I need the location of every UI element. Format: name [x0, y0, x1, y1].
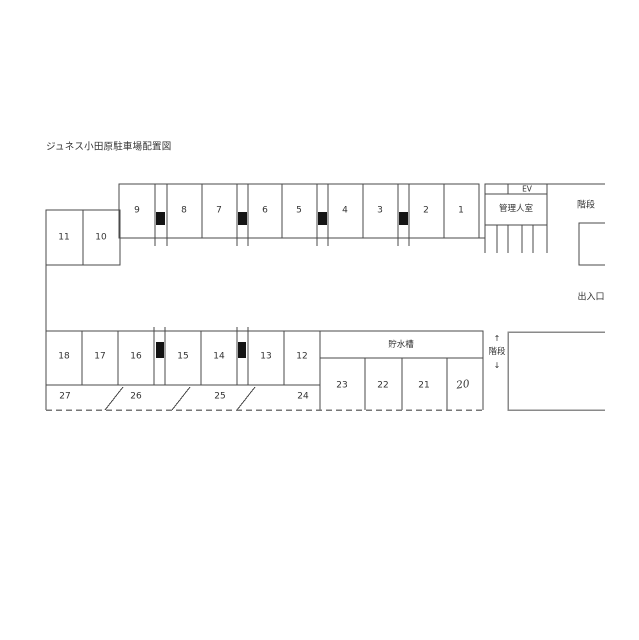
space-label-3: 3 — [377, 207, 383, 216]
stairs-comb — [485, 225, 547, 253]
ev-label: EV — [522, 185, 532, 193]
down-arrow-icon: ↓ — [494, 362, 501, 370]
space-label-11: 11 — [58, 234, 69, 243]
space-label-22: 22 — [377, 382, 388, 391]
angled-row-diagonals — [105, 387, 255, 410]
space-label-15: 15 — [177, 353, 188, 362]
space-label-1: 1 — [458, 207, 464, 216]
space-label-26: 26 — [130, 393, 141, 402]
ev-row-outline — [485, 184, 547, 194]
stairs-lower-label: 階段 — [488, 348, 505, 357]
space-label-6: 6 — [262, 207, 268, 216]
space-label-27: 27 — [59, 393, 70, 402]
space-label-13: 13 — [260, 353, 271, 362]
floorplan-drawing — [0, 0, 639, 640]
space-label-9: 9 — [134, 207, 140, 216]
up-arrow-icon: ↑ — [494, 335, 501, 343]
space-label-18: 18 — [58, 353, 69, 362]
parking-layout-page: ジュネス小田原駐車場配置図987654321111018171615141312… — [0, 0, 639, 640]
lower-row-gap-stubs — [154, 327, 248, 331]
space-label-23: 23 — [336, 382, 347, 391]
space-label-21: 21 — [418, 382, 429, 391]
angled-row-sides — [46, 385, 320, 410]
stairs-upper-label: 階段 — [577, 202, 595, 211]
pillar — [318, 212, 327, 225]
space-label-5: 5 — [296, 207, 302, 216]
pillar — [238, 212, 247, 225]
space-label-20: 20 — [456, 379, 471, 391]
space-label-4: 4 — [342, 207, 348, 216]
pillar — [399, 212, 408, 225]
lower-right-structure-outline — [508, 332, 605, 410]
pillar — [156, 342, 164, 358]
space-label-16: 16 — [130, 353, 141, 362]
space-label-25: 25 — [214, 393, 225, 402]
space-label-7: 7 — [216, 207, 222, 216]
pillar — [156, 212, 165, 225]
upper-stairwell-outline — [579, 223, 605, 265]
space-label-10: 10 — [95, 234, 106, 243]
space-label-24: 24 — [297, 393, 308, 402]
entrance-exit-label: 出入口 — [577, 294, 604, 303]
space-label-14: 14 — [213, 353, 224, 362]
space-label-17: 17 — [94, 353, 105, 362]
diagram-title: ジュネス小田原駐車場配置図 — [46, 142, 171, 152]
water-tank-label: 貯水槽 — [388, 341, 414, 350]
space-label-8: 8 — [181, 207, 187, 216]
pillar — [238, 342, 246, 358]
upper-row-gap-stubs — [155, 238, 409, 246]
space-label-12: 12 — [296, 353, 307, 362]
space-label-2: 2 — [423, 207, 429, 216]
manager-room-label: 管理人室 — [499, 205, 533, 214]
